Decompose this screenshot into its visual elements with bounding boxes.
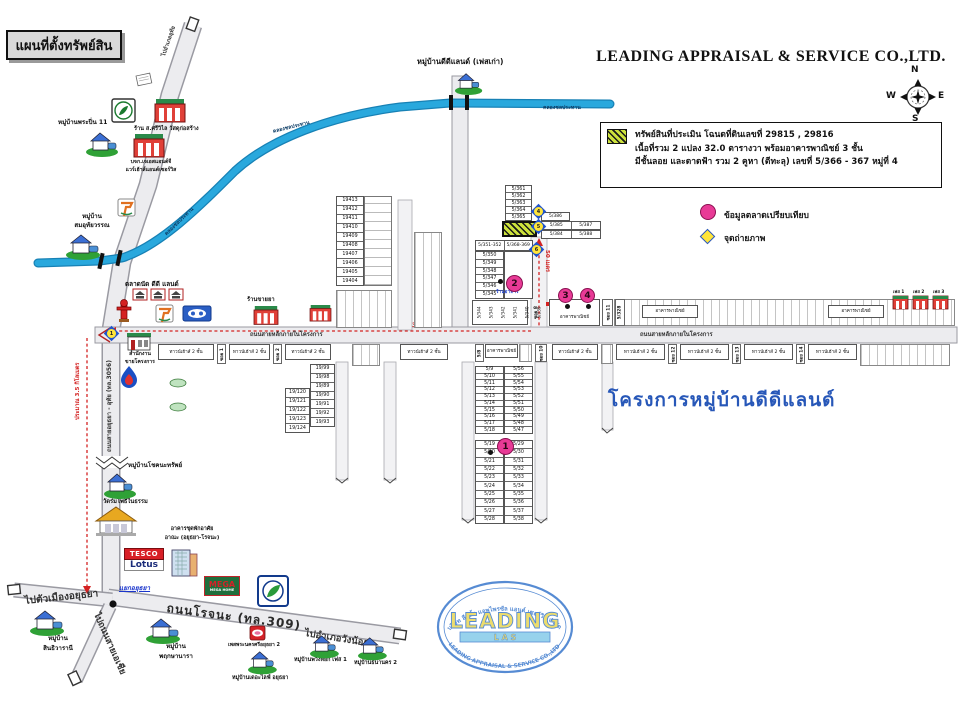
plot-number: 5/349 [476,260,503,268]
plot-strip-texture-3 [519,344,532,362]
plot-number: 19405 [337,268,363,277]
plot-number: 5/365 [506,214,531,220]
legend-line-1: ทรัพย์สินที่ประเมิน โฉนดที่ดินเลขที่ 298… [635,129,935,143]
soi-1-post: ซอย 1 [217,344,226,364]
soi-10-text: ซอย 10 [538,345,545,361]
townhouse-box-5: ทาวน์เฮ้าส์ 2 ชั้น [552,344,598,360]
plot-number: 5/8 [477,349,482,357]
market-legend-icon [700,204,716,220]
plot-number: 19/89 [311,383,334,392]
marker-number: 1 [502,442,508,452]
thelife-label: หมู่บ้านเดอะไลฟ์ อยุธยา [232,675,288,681]
map-title: แผนที่ตั้งทรัพย์สิน [6,30,122,60]
townhouse-box-3: ทาวน์เฮ้าส์ 2 ชั้น [285,344,331,360]
sinthi-label-2: สินธิวารานี [24,645,92,652]
condo-label-1: อาคารชุดพักอาศัย [162,526,222,532]
condo-label-2: อาณะ (อยุธยา-โรจนะ) [155,535,229,541]
plot-number: 5/32 [505,466,532,474]
marker-number: 3 [562,291,568,301]
plot-strip-texture-2 [414,232,442,328]
plot-number: 5/36 [505,499,532,507]
marker-number: 1 [107,329,116,338]
plot-number: 5/13 [476,394,503,401]
esso-label: เพสพระนครศรีอยุธยา 2 [228,643,280,649]
phase-1-label: เฟส 1 [893,288,904,295]
compass-w: W [886,91,896,101]
canal-label-3: คลองชลประทาน [543,104,581,112]
plot-number: 5/38 [505,516,532,523]
plot-number: 5/35 [505,491,532,499]
plot-number: 19404 [337,277,363,285]
plot-row-5384: 5/3845/388 [541,230,601,239]
soi-13-text: ซอย 13 [733,346,740,362]
plot-number: 19/124 [286,424,309,432]
soi-2-post: ซอย 2 [273,344,282,364]
soi-14-text: ซอย 14 [797,346,804,362]
plot-number: 5/363 [506,200,531,207]
mega-sub-text: MEGA HOME [210,589,234,593]
photo-legend-label: จุดถ่ายภาพ [724,231,765,245]
subject-swatch [607,129,627,144]
shophouse-label-1: อาคารพาณิชย์ [551,312,598,323]
jsk-label-1: บจก.เจเอสแอนด์จี [116,160,186,166]
plot-number: 5/362 [506,193,531,200]
sinthi-label-1: หมู่บ้าน [30,635,86,642]
plot-number: 19/93 [311,418,334,426]
townhouse-box-7: ทาวน์เฮ้าส์ 2 ชั้น [680,344,729,360]
soi-11-text: ซอย 11 [604,305,611,321]
plot-number: 5/49 [505,414,532,421]
plot-number: 19/90 [311,392,334,401]
plot-number: 5/16 [476,414,503,421]
market-marker-1: 1 [497,438,514,455]
plot-row-5386: 5/386 [541,212,570,221]
road-label-hwy3056: ถนนสายอยุธยา - อุทัย (ทล.3056) [104,360,114,452]
plot-number: 19410 [337,224,363,233]
plot-number: 19/122 [286,407,309,416]
puangyok-label: หมู่บ้านพวงหยก เฟส 1 [294,657,347,663]
plot-number: 5/386 [542,213,569,220]
plot-column-19120: 19/12019/12119/12219/12319/124 [285,388,310,433]
legend-line-3: มีชั้นลอย และดาดฟ้า รวม 2 คูหา (ตีทะลุ) … [635,156,935,170]
plot-number: 5/23 [476,474,503,482]
townhouse-box-4: ทาวน์เฮ้าส์ 2 ชั้น [400,344,448,360]
phruksa-label-2: พฤกษานารา [142,653,210,660]
wat-label: วัดร่มโพธิ์ในธรรม [103,499,148,506]
townhouse-box-8: ทาวน์เฮ้าส์ 2 ชั้น [744,344,793,360]
townhouse-box-9: ทาวน์เฮ้าส์ 2 ชั้น [808,344,857,360]
lotus-text: Lotus [124,560,164,571]
junction-dot [109,600,116,607]
project-name: โครงการหมู่บ้านดีดีแลนด์ [608,385,835,415]
plot-number: 19409 [337,233,363,242]
marker-number: 2 [511,279,517,289]
soi-8-text: ซอย 8 [532,306,539,319]
market-marker-3: 3 [558,288,573,303]
jsk-label-2: แวร์เฮ้าส์แอนด์เซอร์วิส [106,168,196,174]
plot-number: 5/34 [505,482,532,490]
soi-11-post: ซอย 11 [602,299,613,326]
shophouse-label-4: อาคารพาณิชย์ [485,344,518,358]
marker-dot-1 [488,450,493,455]
road-label-main-west: ถนนสายหลักภายในโครงการ [250,329,323,339]
phase-3-label: เฟส 3 [933,288,944,295]
plot-number: 5/350 [476,252,503,260]
plot-number: 5/10 [476,374,503,381]
soi-13-post: ซอย 13 [732,344,741,364]
plot-number: 5/328 [618,306,623,320]
plot-number: 5/48 [505,421,532,428]
soi-8-label: ซอย 8 [531,300,540,325]
plot-number: 5/384 [542,231,572,238]
market-dd-label: ตลาดนัด ดีดี แลนด์ [125,281,179,288]
plot-number: 5/22 [476,466,503,474]
plot-number: 5/31 [505,458,532,466]
plot-column-19400: 1941319412194111941019409194081940719406… [336,196,364,286]
plot-number: 19/91 [311,400,334,409]
plot-number: 19413 [337,197,363,206]
plot-strip-5344: 5/3445/3435/3425/3415/3405/3395/3385/337 [472,300,528,325]
plot-number: 19407 [337,250,363,259]
plot-number: 5/351-352 [476,241,505,250]
plot-number: 5/50 [505,407,532,414]
plot-number: 5/21 [476,458,503,466]
marker-dot-2 [498,279,503,284]
plot-column-5361: 5/3615/3625/3635/3645/365 [505,185,532,221]
marker-dot-3 [565,304,570,309]
pharmacy-label: ร้านขายยา [247,297,275,304]
plot-number: 5/51 [505,401,532,408]
plot-number: 5/26 [476,499,503,507]
plot-number: 19408 [337,242,363,251]
plot-number: 19412 [337,206,363,215]
townhouse-box-1: ทาวน์เฮ้าส์ 2 ชั้น [158,344,214,360]
plot-number: 5/53 [505,387,532,394]
plot-number: 5/37 [505,507,532,515]
plot-number: 5/27 [476,507,503,515]
plot-strip-texture-4 [352,344,380,366]
plot-number: 5/17 [476,421,503,428]
plot-strip-texture-1 [336,290,392,328]
marker-dot-4 [586,304,591,309]
mega-home-logo: MEGA MEGA HOME [204,576,240,596]
compass-icon [900,79,936,115]
plot-number: 5/388 [572,231,601,238]
compass-n: N [911,65,919,75]
compass-e: E [938,91,944,101]
plot-number: 5/24 [476,482,503,490]
marker-number: 4 [534,207,543,216]
plot-number: 19/121 [286,398,309,407]
plot-table-5-9: 5/95/105/115/125/135/145/155/165/175/18 [475,366,504,434]
soi-2-text: ซอย 2 [274,348,281,361]
tesco-lotus-logo: TESCO Lotus [124,548,164,571]
plot-number: 5/52 [505,394,532,401]
office-label-1: สำนักงาน [118,352,162,358]
thananakorn-label: หมู่บ้านธนานคร 2 [354,660,397,666]
plot-number: 5/361 [506,186,531,193]
plot-row-5385: 5/3855/387 [541,221,601,230]
phruksa-label-1: หมู่บ้าน [148,643,204,650]
plot-number: 5/385 [542,222,572,229]
distance-50m: 50 เมตร [543,250,551,272]
soi-12-text: ซอย 12 [669,346,676,362]
shophouse-label-3: อาคารพาณิชย์ [828,305,884,318]
market-legend-label: ข้อมูลตลาดเปรียบเทียบ [724,208,809,222]
plot-table-5-56: 5/565/555/545/535/525/515/505/495/485/47 [504,366,533,434]
townhouse-box-2: ทาวน์เฮ้าส์ 2 ชั้น [229,344,270,360]
legend-line-2: เนื้อที่รวม 2 แปลง 32.0 ตารางวา พร้อมอาค… [635,143,935,157]
plot-number: 5/14 [476,401,503,408]
marker-number: 6 [532,245,541,254]
plot-number: 5/47 [505,427,532,433]
samuthai-label-1: หมู่บ้าน [62,213,122,220]
plot-number: 5/33 [505,474,532,482]
plot-number: 5/56 [505,367,532,374]
plot-column-1989: 19/9919/9819/8919/9019/9119/9219/93 [310,364,335,427]
plot-number: 5/25 [476,491,503,499]
choknathap-label: หมู่บ้านโชคนะทรัพย์ [128,462,182,469]
plot-number: 19406 [337,259,363,268]
soi-14-post: ซอย 14 [796,344,805,364]
plot-strip-texture-6 [860,344,950,366]
plot-number: 19/92 [311,409,334,418]
junction-label: แยกอยุธยา [119,583,150,593]
property-location-map: แผนที่ตั้งทรัพย์สิน LEADING APPRAISAL & … [0,0,960,720]
marker-number: 4 [584,291,590,301]
road-label-main-east: ถนนสายหลักภายในโครงการ [640,329,713,339]
plot-number: 19/98 [311,374,334,383]
plot-column-empty [364,196,392,286]
townhouse-box-6: ทาวน์เฮ้าส์ 2 ชั้น [616,344,665,360]
company-name: LEADING APPRAISAL & SERVICE CO.,LTD. [585,48,957,66]
plot-number: 19411 [337,215,363,224]
plot-number: 5/348 [476,268,503,276]
plot-number: 19/99 [311,365,334,374]
plot-5328: 5/328 [615,299,625,326]
shophouse-label-2: อาคารพาณิชย์ [642,305,698,318]
tesco-text: TESCO [124,548,164,560]
prapin-label: หมู่บ้านพระปิ่น 11 [58,119,107,126]
plot-strip-texture-5 [601,344,613,364]
samuthai-label-2: สมอุทัยวรรณ [56,222,128,229]
plot-header-5351: 5/351-3525/368-369 [475,240,533,251]
sriwilai-label: ร้าน ส.ศรีวิไล วัสดุก่อสร้าง [134,126,199,132]
market-marker-2: 2 [506,275,523,292]
plot-number: 5/9 [476,367,503,374]
soi-10-post: ซอย 10 [535,344,547,362]
plot-number: 19/120 [286,389,309,398]
map-title-text: แผนที่ตั้งทรัพย์สิน [16,35,113,56]
soi-12-post: ซอย 12 [668,344,677,364]
plot-number: 5/55 [505,374,532,381]
plot-58: 5/8 [475,344,484,362]
market-marker-4: 4 [580,288,595,303]
distance-3-5km: ประมาณ 3.5 กิโลเมตร [74,363,82,420]
plot-number: 5/18 [476,427,503,433]
marker-number: 5 [534,222,543,231]
plot-number: 5/15 [476,407,503,414]
legend-box: ทรัพย์สินที่ประเมิน โฉนดที่ดินเลขที่ 298… [600,122,942,188]
subject-property [502,221,537,237]
phase-2-label: เฟส 2 [913,288,924,295]
soi-1-text: ซอย 1 [218,348,225,361]
plot-number: 19/123 [286,415,309,424]
pond-icon [170,379,186,411]
plot-number: 5/364 [506,207,531,214]
plot-number: 5/12 [476,387,503,394]
office-label-2: ขายโครงการ [112,360,168,366]
plot-number: 5/28 [476,516,503,523]
plot-number: 5/387 [572,222,601,229]
dd-old-label: หมู่บ้านดีดีแลนด์ (เฟสเก่า) [417,58,503,67]
